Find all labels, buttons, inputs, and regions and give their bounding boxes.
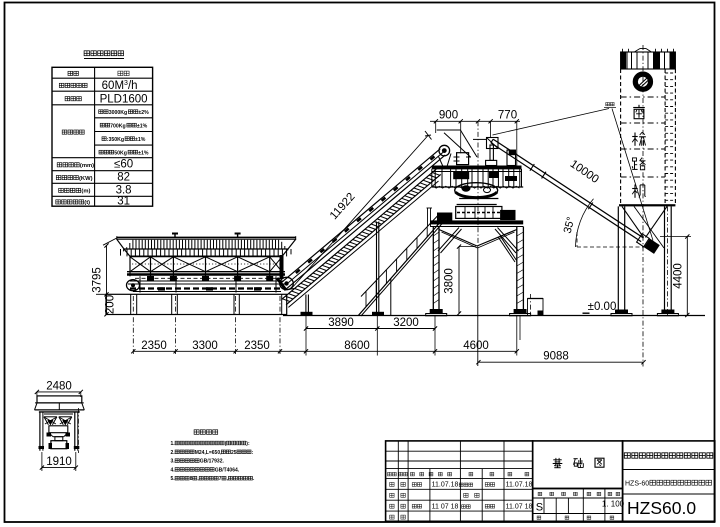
svg-text:8: 8 xyxy=(190,476,193,482)
svg-text:PLD1600: PLD1600 xyxy=(100,93,148,105)
svg-text:11.07.18: 11.07.18 xyxy=(506,482,533,489)
svg-text:±0.00: ±0.00 xyxy=(588,301,617,313)
svg-text:200: 200 xyxy=(105,295,117,314)
svg-text:60M3/h: 60M3/h xyxy=(102,80,138,92)
svg-text:11.07.18: 11.07.18 xyxy=(432,482,459,489)
svg-text:2350: 2350 xyxy=(244,340,270,352)
svg-text:11.07 18: 11.07 18 xyxy=(506,503,533,510)
svg-text:(m): (m) xyxy=(81,189,90,195)
svg-text:3200: 3200 xyxy=(393,317,419,329)
svg-text:2480: 2480 xyxy=(46,381,72,393)
svg-text:(t): (t) xyxy=(84,200,90,206)
svg-text:8600: 8600 xyxy=(344,340,370,352)
svg-text:M24,L=650,: M24,L=650, xyxy=(195,450,222,456)
svg-text:±1%: ±1% xyxy=(138,150,149,156)
svg-text:770: 770 xyxy=(498,110,517,122)
svg-text:1910: 1910 xyxy=(46,456,72,468)
svg-text:(KW): (KW) xyxy=(79,176,93,182)
svg-text:1.: 1. xyxy=(171,441,176,447)
svg-text:9088: 9088 xyxy=(543,351,569,363)
svg-text:2.: 2. xyxy=(171,450,176,456)
svg-text:11 07 18: 11 07 18 xyxy=(432,503,459,510)
svg-text:≤60: ≤60 xyxy=(114,159,133,171)
svg-text:S: S xyxy=(536,502,543,514)
svg-text:4400: 4400 xyxy=(673,263,685,289)
svg-text:3795: 3795 xyxy=(92,267,104,293)
svg-text:25: 25 xyxy=(231,450,237,456)
svg-text:4.: 4. xyxy=(171,467,176,473)
svg-text:900: 900 xyxy=(439,110,458,122)
svg-text:HZS-60: HZS-60 xyxy=(625,481,649,488)
svg-text:3890: 3890 xyxy=(328,317,354,329)
svg-text::350Kg: :350Kg xyxy=(107,137,124,143)
svg-text:):: ): xyxy=(246,441,250,447)
svg-text:3300: 3300 xyxy=(192,340,218,352)
svg-text:3.: 3. xyxy=(171,459,176,465)
svg-text:4600: 4600 xyxy=(463,340,489,352)
svg-text:±1%: ±1% xyxy=(135,137,146,143)
svg-text:3000Kg: 3000Kg xyxy=(109,110,127,116)
svg-text:2350: 2350 xyxy=(141,340,167,352)
svg-text:(mm): (mm) xyxy=(80,163,94,169)
svg-text:±2%: ±2% xyxy=(138,110,149,116)
svg-text:50Kg: 50Kg xyxy=(114,150,127,156)
svg-text:HZS60.0: HZS60.0 xyxy=(627,498,696,518)
svg-text:5.: 5. xyxy=(171,476,176,482)
svg-text:GB/17932.: GB/17932. xyxy=(200,459,225,465)
svg-text:3800: 3800 xyxy=(443,268,455,294)
svg-text:GB/T4064.: GB/T4064. xyxy=(215,467,240,473)
svg-text:31: 31 xyxy=(117,195,130,207)
svg-text:7: 7 xyxy=(219,476,222,482)
svg-text:1. 100: 1. 100 xyxy=(602,500,625,509)
svg-text:82: 82 xyxy=(117,171,130,183)
svg-text:700Kg: 700Kg xyxy=(110,123,126,129)
svg-text:±1%: ±1% xyxy=(137,123,148,129)
